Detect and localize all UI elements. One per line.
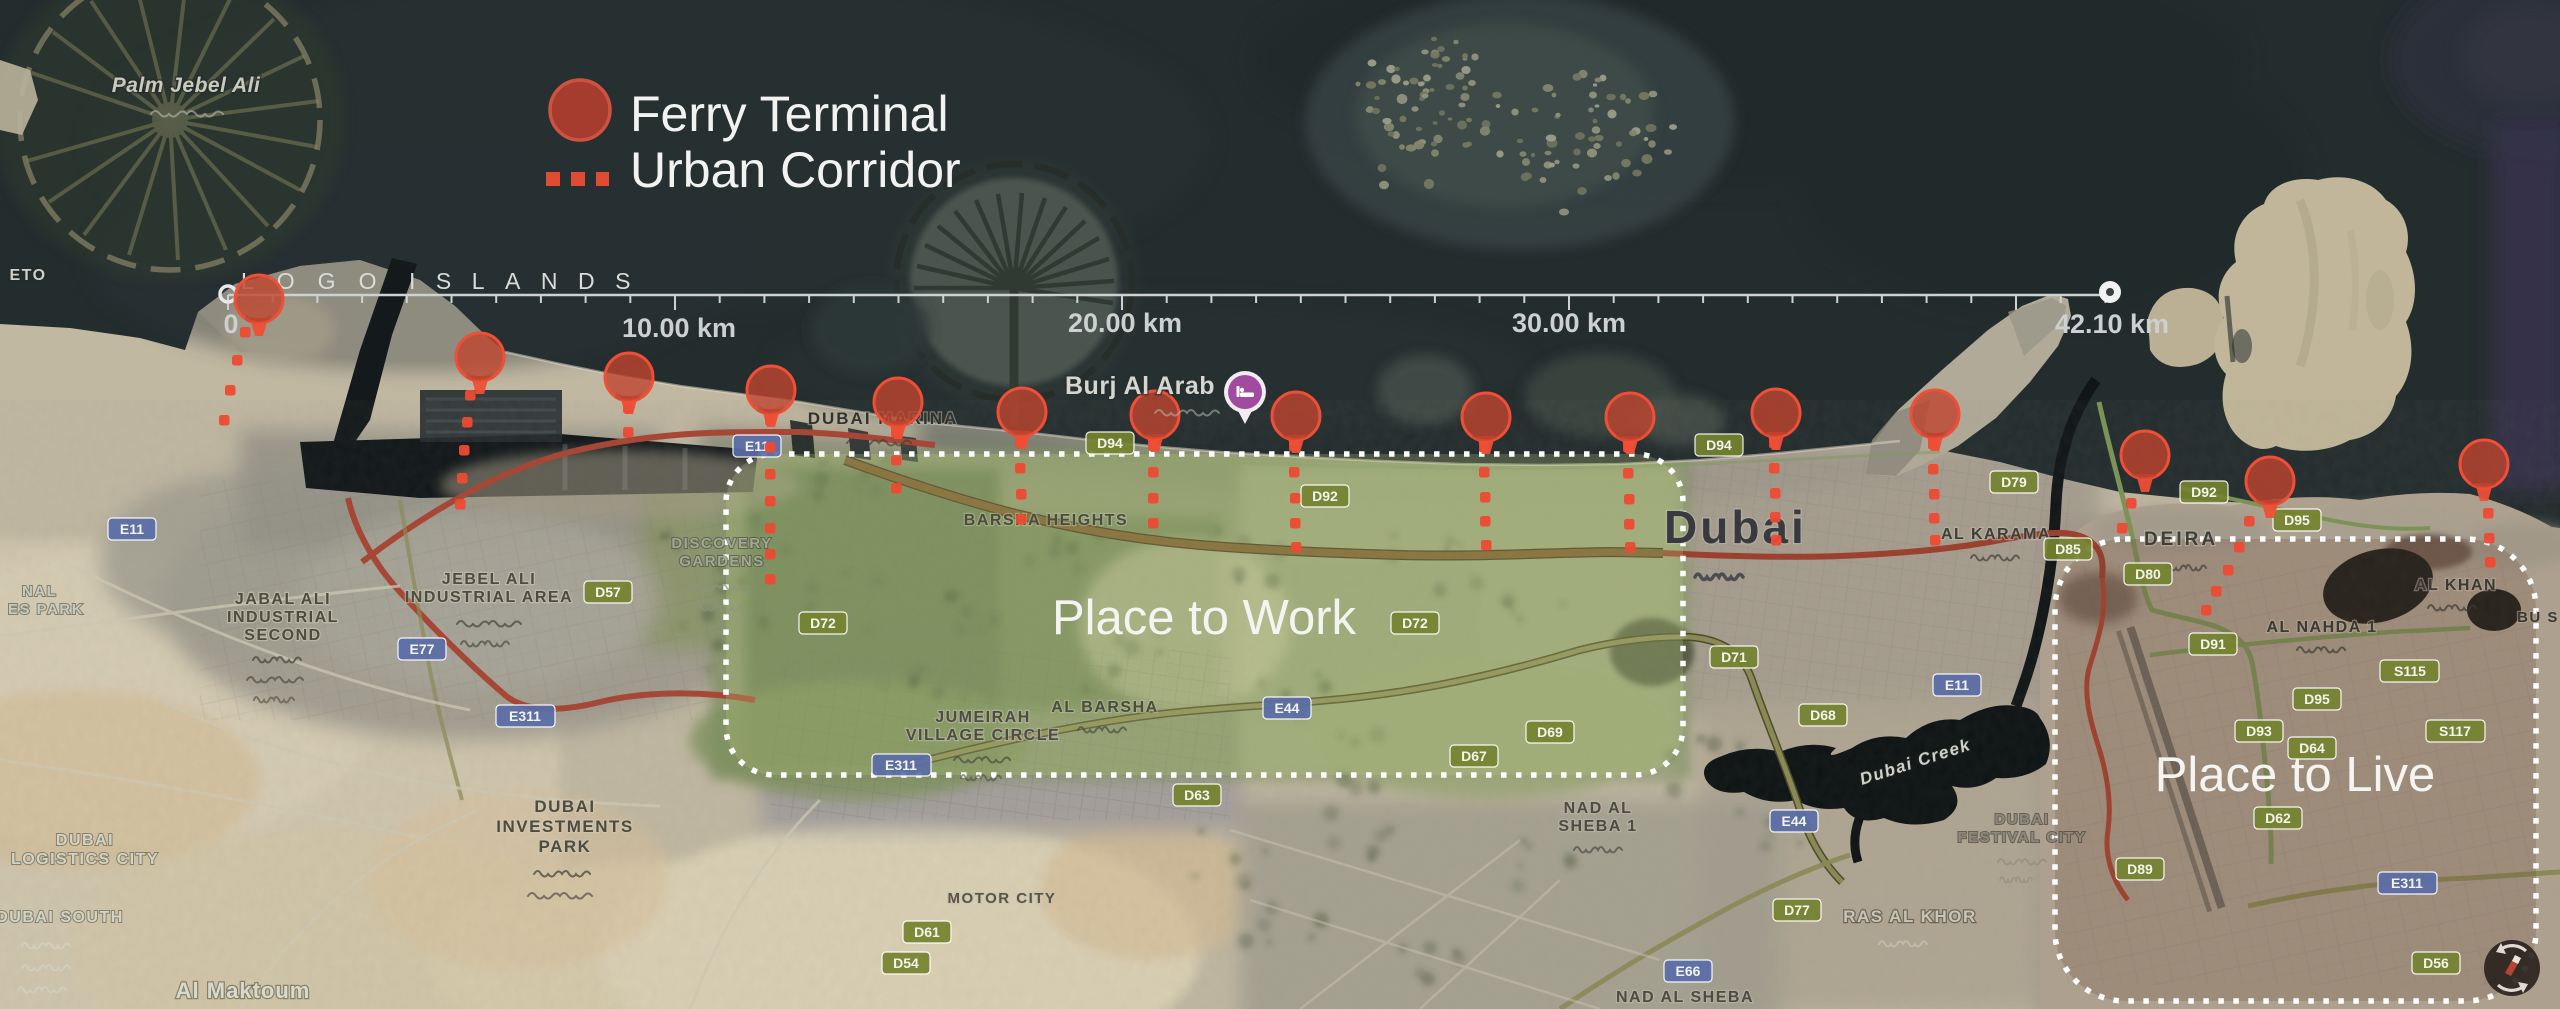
svg-text:S117: S117 [2439,723,2471,739]
svg-text:AL KARAMA: AL KARAMA [1941,526,2051,543]
svg-text:Ferry Terminal: Ferry Terminal [630,86,949,142]
svg-text:ES PARK: ES PARK [8,601,84,618]
svg-text:SECOND: SECOND [244,627,321,644]
svg-text:JEBEL ALI: JEBEL ALI [442,571,536,588]
svg-text:INDUSTRIAL AREA: INDUSTRIAL AREA [405,589,573,606]
svg-text:ISLANDS: ISLANDS [409,268,651,294]
svg-text:NAD AL SHEBA: NAD AL SHEBA [1616,989,1754,1006]
svg-text:D94: D94 [1097,435,1123,451]
svg-text:Palm Jebel Ali: Palm Jebel Ali [112,74,261,97]
svg-text:D77: D77 [1784,902,1810,918]
svg-text:INVESTMENTS: INVESTMENTS [496,817,633,836]
svg-text:Dubai: Dubai [1664,501,1807,553]
svg-text:E44: E44 [1782,813,1807,829]
svg-text:D95: D95 [2304,691,2330,707]
svg-text:BU S: BU S [2517,609,2559,626]
svg-text:PARK: PARK [539,837,592,856]
svg-text:ETO: ETO [9,267,46,284]
svg-text:E11: E11 [120,521,144,537]
svg-text:D61: D61 [914,924,940,940]
svg-text:D85: D85 [2055,541,2081,557]
svg-text:JUMEIRAH: JUMEIRAH [935,709,1031,726]
svg-text:D92: D92 [2191,484,2217,500]
svg-text:DEIRA: DEIRA [2144,529,2218,550]
svg-text:LOGISTICS CITY: LOGISTICS CITY [11,851,159,868]
svg-text:D56: D56 [2423,955,2449,971]
svg-text:INDUSTRIAL: INDUSTRIAL [227,609,339,626]
svg-text:Urban Corridor: Urban Corridor [630,142,961,198]
svg-text:DUBAI: DUBAI [56,832,114,849]
svg-text:E44: E44 [1275,700,1300,716]
svg-text:0: 0 [223,309,238,339]
svg-text:DUBAI SOUTH: DUBAI SOUTH [0,909,124,926]
svg-text:D69: D69 [1537,724,1563,740]
svg-text:AL BARSHA: AL BARSHA [1051,699,1158,716]
svg-text:D71: D71 [1721,649,1747,665]
svg-text:D94: D94 [1706,437,1732,453]
svg-text:20.00 km: 20.00 km [1068,308,1182,338]
svg-text:D63: D63 [1184,787,1210,803]
svg-text:SHEBA 1: SHEBA 1 [1558,818,1637,835]
svg-text:D79: D79 [2001,474,2027,490]
svg-text:E77: E77 [410,641,435,657]
svg-text:AL NAHDA 1: AL NAHDA 1 [2266,619,2377,636]
svg-text:E11: E11 [1945,677,1969,693]
svg-text:D89: D89 [2127,861,2153,877]
svg-text:D54: D54 [893,955,919,971]
svg-text:AL KHAN: AL KHAN [2415,577,2497,594]
svg-text:D62: D62 [2265,810,2291,826]
svg-text:DISCOVERY: DISCOVERY [671,535,772,552]
svg-text:D68: D68 [1810,707,1836,723]
svg-text:D95: D95 [2284,512,2310,528]
svg-text:D92: D92 [1312,488,1338,504]
svg-text:FESTIVAL CITY: FESTIVAL CITY [1958,829,2087,846]
svg-text:BARSHA HEIGHTS: BARSHA HEIGHTS [964,512,1128,529]
svg-text:D67: D67 [1461,748,1487,764]
svg-text:S115: S115 [2394,663,2426,679]
svg-text:E311: E311 [2391,875,2423,891]
svg-text:E311: E311 [509,708,541,724]
svg-text:NAL: NAL [22,583,57,600]
svg-text:Place to Work: Place to Work [1052,591,1357,645]
svg-text:D72: D72 [1402,615,1428,631]
svg-text:VILLAGE CIRCLE: VILLAGE CIRCLE [906,727,1060,744]
svg-text:30.00 km: 30.00 km [1512,308,1626,338]
svg-text:Al Maktoum: Al Maktoum [176,978,311,1003]
svg-text:D91: D91 [2200,636,2226,652]
svg-text:Place to Live: Place to Live [2155,748,2436,802]
svg-text:DUBAI: DUBAI [1995,811,2050,828]
svg-text:RAS AL KHOR: RAS AL KHOR [1843,907,1977,926]
svg-text:E66: E66 [1676,963,1701,979]
svg-text:MOTOR CITY: MOTOR CITY [948,890,1057,907]
svg-text:JABAL ALI: JABAL ALI [235,591,331,608]
svg-text:42.10 km: 42.10 km [2055,309,2169,339]
svg-text:NAD AL: NAD AL [1564,800,1633,817]
svg-text:E311: E311 [885,757,917,773]
svg-text:D93: D93 [2246,723,2272,739]
svg-text:GARDENS: GARDENS [679,553,765,570]
svg-text:D72: D72 [810,615,836,631]
svg-text:Burj Al Arab: Burj Al Arab [1065,372,1215,400]
svg-text:D57: D57 [595,584,621,600]
svg-text:DUBAI: DUBAI [534,797,595,816]
svg-text:D80: D80 [2135,566,2161,582]
svg-text:10.00 km: 10.00 km [622,313,736,343]
